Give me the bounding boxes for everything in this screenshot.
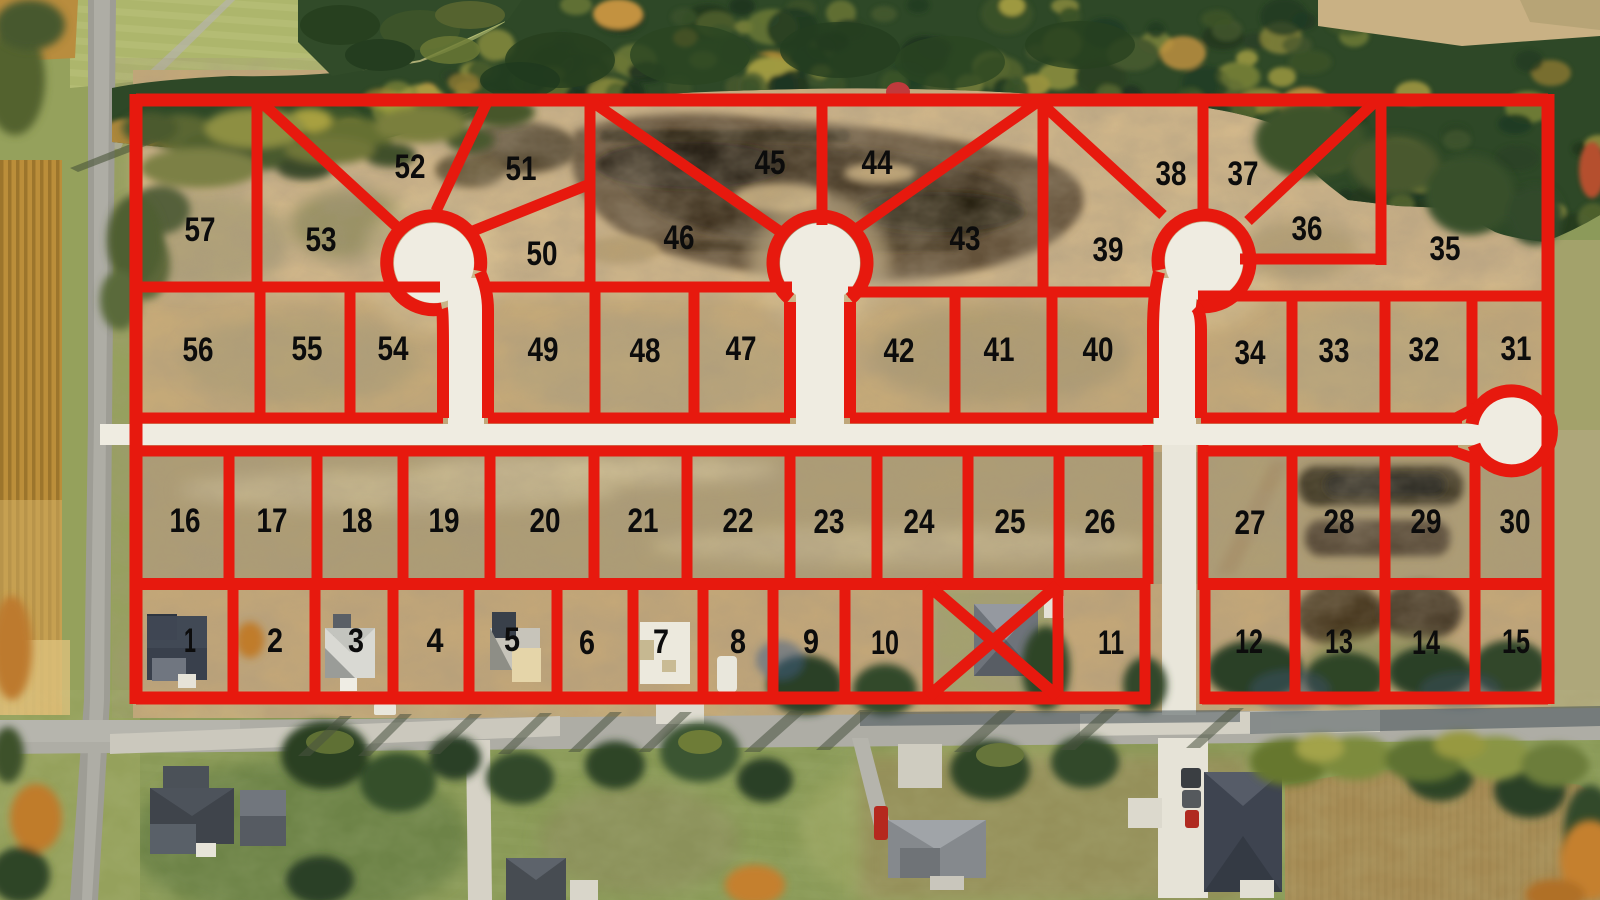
svg-text:35: 35 <box>1430 230 1461 268</box>
svg-text:51: 51 <box>506 150 537 188</box>
svg-text:19: 19 <box>429 502 460 540</box>
svg-text:4: 4 <box>427 622 444 660</box>
svg-text:34: 34 <box>1235 334 1266 372</box>
svg-text:48: 48 <box>630 332 661 370</box>
svg-text:8: 8 <box>730 623 746 661</box>
svg-text:9: 9 <box>803 623 819 661</box>
svg-text:14: 14 <box>1412 624 1440 662</box>
svg-text:41: 41 <box>984 331 1015 369</box>
svg-text:20: 20 <box>530 502 561 540</box>
svg-text:32: 32 <box>1409 331 1440 369</box>
svg-text:2: 2 <box>267 622 283 660</box>
svg-text:56: 56 <box>183 331 214 369</box>
svg-text:27: 27 <box>1235 504 1266 542</box>
svg-text:57: 57 <box>185 211 216 249</box>
svg-text:36: 36 <box>1292 210 1323 248</box>
svg-text:46: 46 <box>664 219 695 257</box>
svg-text:50: 50 <box>527 235 558 273</box>
svg-text:11: 11 <box>1098 624 1124 662</box>
svg-text:21: 21 <box>628 502 659 540</box>
svg-text:38: 38 <box>1156 155 1187 193</box>
svg-text:10: 10 <box>871 624 899 662</box>
svg-text:3: 3 <box>348 622 364 660</box>
svg-text:23: 23 <box>814 503 845 541</box>
svg-text:13: 13 <box>1325 623 1353 661</box>
svg-text:7: 7 <box>653 623 669 661</box>
svg-text:39: 39 <box>1093 231 1124 269</box>
svg-text:42: 42 <box>884 332 915 370</box>
svg-text:22: 22 <box>723 502 754 540</box>
svg-text:12: 12 <box>1235 623 1263 661</box>
svg-text:45: 45 <box>755 144 786 182</box>
svg-text:49: 49 <box>528 331 559 369</box>
svg-text:54: 54 <box>378 330 409 368</box>
svg-text:28: 28 <box>1324 503 1355 541</box>
svg-text:25: 25 <box>995 503 1026 541</box>
svg-text:43: 43 <box>950 220 981 258</box>
svg-text:55: 55 <box>292 330 323 368</box>
svg-text:18: 18 <box>342 502 373 540</box>
svg-text:44: 44 <box>862 144 893 182</box>
svg-text:1: 1 <box>184 622 196 660</box>
svg-text:5: 5 <box>504 621 520 659</box>
svg-text:24: 24 <box>904 503 935 541</box>
svg-text:52: 52 <box>395 148 426 186</box>
svg-text:17: 17 <box>257 502 288 540</box>
svg-text:6: 6 <box>579 624 595 662</box>
svg-text:16: 16 <box>170 502 201 540</box>
svg-text:26: 26 <box>1085 503 1116 541</box>
svg-text:40: 40 <box>1083 331 1114 369</box>
svg-text:31: 31 <box>1501 330 1532 368</box>
svg-text:33: 33 <box>1319 332 1350 370</box>
svg-text:37: 37 <box>1228 155 1259 193</box>
svg-text:53: 53 <box>306 221 337 259</box>
svg-text:15: 15 <box>1502 623 1530 661</box>
svg-text:30: 30 <box>1500 503 1531 541</box>
svg-text:29: 29 <box>1411 503 1442 541</box>
svg-text:47: 47 <box>726 330 757 368</box>
